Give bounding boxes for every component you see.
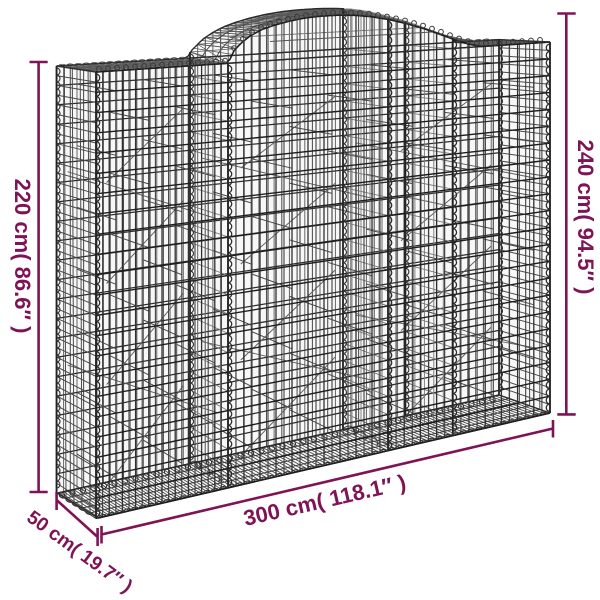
svg-text:240 cm( 94.5″ ): 240 cm( 94.5″ ) [573, 140, 598, 295]
svg-text:220 cm( 86.6″ ): 220 cm( 86.6″ ) [10, 179, 35, 334]
